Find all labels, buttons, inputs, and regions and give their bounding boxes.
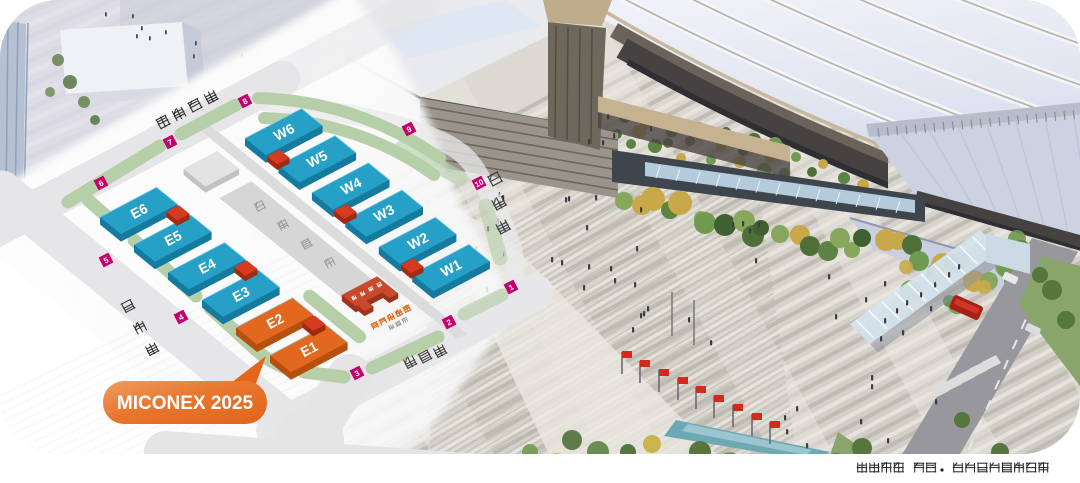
svg-text:MICONEX 2025: MICONEX 2025 (117, 393, 254, 414)
